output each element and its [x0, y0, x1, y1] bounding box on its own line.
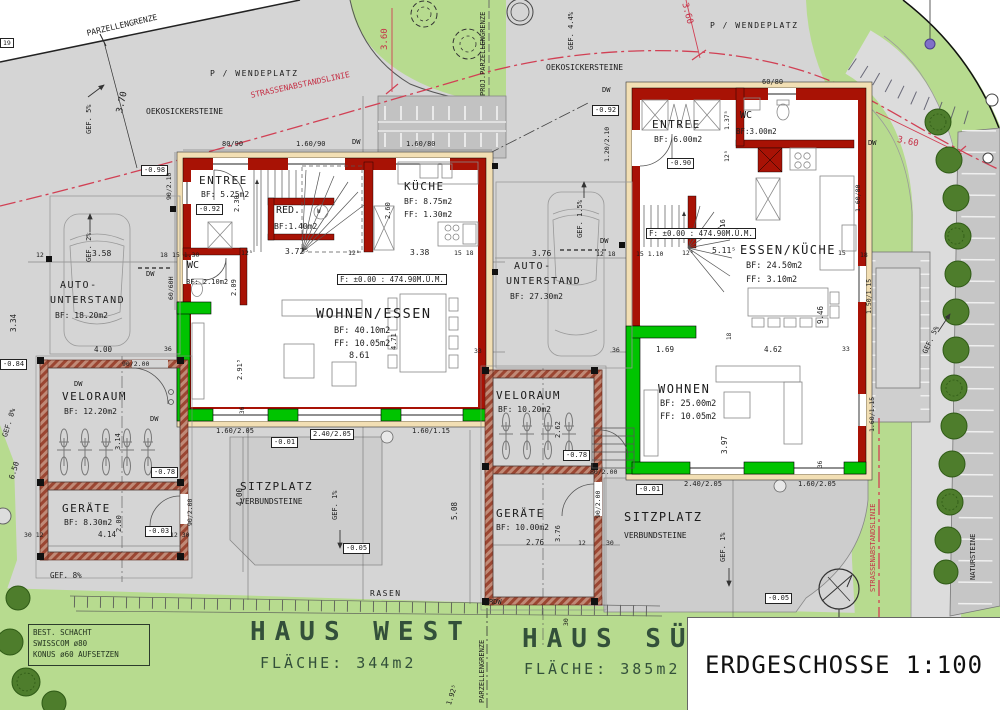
- note-line-3: KONUS ø60 AUFSETZEN: [33, 650, 145, 661]
- entry-pavers-west: [378, 96, 506, 158]
- haus-west-title: HAUS WEST: [250, 617, 472, 647]
- title-block: ERDGESCHOSSE 1:100: [687, 617, 1000, 710]
- haus-west-area: FLÄCHE: 344m2: [260, 654, 416, 672]
- haus-west-plan: [177, 152, 493, 427]
- plan-drawing: [0, 0, 1000, 710]
- terrace-steps-sued: [866, 252, 930, 422]
- site-plan: PARZELLENGRENZEP / WENDEPLATZOEKOSICKERS…: [0, 0, 1000, 710]
- haus-sued-area: FLÄCHE: 385m2: [524, 660, 680, 678]
- schacht-note-box: BEST. SCHACHT SWISSCOM ø80 KONUS ø60 AUF…: [28, 624, 150, 666]
- haus-sued-plan: [626, 82, 872, 480]
- note-line-1: BEST. SCHACHT: [33, 628, 145, 639]
- note-line-2: SWISSCOM ø80: [33, 639, 145, 650]
- sitzplatz-west-area: [230, 437, 382, 565]
- plan-title: ERDGESCHOSSE 1:100: [705, 651, 983, 679]
